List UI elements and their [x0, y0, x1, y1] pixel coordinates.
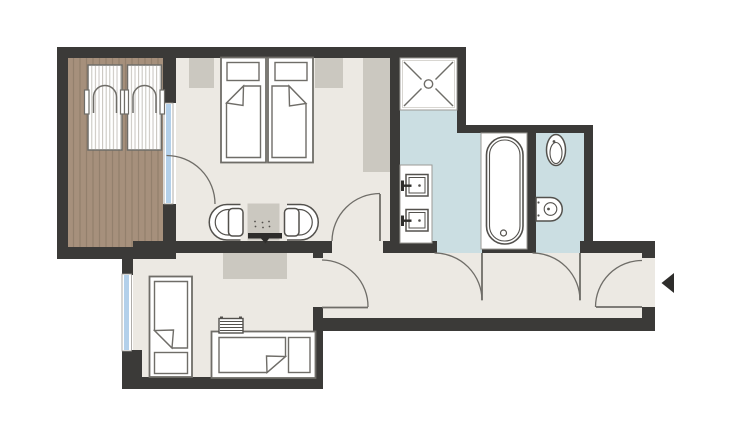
wall-secondroom-left-top — [122, 253, 133, 275]
radiator — [219, 317, 243, 334]
floor-plan-drawing — [0, 0, 754, 435]
single-bed-vertical — [150, 277, 193, 378]
lounger-armrest — [160, 90, 165, 114]
armchair-left — [209, 205, 243, 241]
wall-top — [57, 47, 466, 58]
sun-lounger-left — [85, 65, 125, 150]
second-room-window — [122, 274, 132, 351]
wall-bath-wc-divider — [527, 133, 536, 253]
single-bed-horizontal-pillow — [289, 338, 311, 373]
wc-door-gap-floor — [536, 241, 580, 253]
shower — [400, 58, 457, 110]
wardrobe — [363, 58, 390, 172]
vanity — [400, 165, 432, 243]
single-bed-vertical-pillow — [155, 353, 188, 374]
wall-bath-wc-top — [457, 125, 593, 133]
armchair-right — [285, 205, 319, 241]
wall-wc-right — [584, 125, 593, 253]
wall-hallway-bottom — [315, 318, 655, 331]
balcony-glass-pane — [166, 104, 171, 203]
entry-arrow-icon — [662, 273, 675, 293]
wall-band-hall-3 — [580, 241, 642, 253]
armchair-left-cushion — [229, 209, 244, 237]
sun-lounger-right — [125, 65, 165, 150]
balcony-glass-door — [164, 103, 173, 204]
wall-outer-right-top — [642, 241, 655, 258]
twin-bed-right-pillow — [275, 63, 307, 81]
second-room-door-gap-floor — [313, 258, 323, 307]
faucet-icon — [401, 216, 404, 227]
wall-band-bedroom-secondroom — [133, 241, 332, 253]
bidet — [536, 198, 562, 222]
nightstand-left — [189, 58, 214, 88]
wall-secondroom-right-top — [313, 241, 323, 258]
single-bed-horizontal — [212, 332, 316, 379]
nightstand-right — [315, 58, 343, 88]
wall-secondroom-left-bottom — [122, 350, 142, 389]
bathtub — [481, 133, 527, 249]
armchair-right-cushion — [285, 209, 300, 237]
lounger-armrest — [85, 90, 90, 114]
entrance-gap-floor — [642, 258, 655, 307]
bathtub-rim — [487, 137, 524, 244]
tv-screen — [248, 233, 282, 239]
shower-drain — [424, 80, 432, 88]
wall-bedroom-bath — [390, 47, 400, 253]
toilet — [547, 135, 566, 166]
window-pane — [124, 275, 129, 350]
bathtub-drain — [501, 230, 507, 236]
wall-shower-right — [457, 47, 466, 133]
bathroom-door-gap-floor — [437, 241, 482, 253]
bedroom-door-gap-floor — [332, 241, 383, 253]
floor-plan — [0, 0, 754, 435]
twin-bed-left-pillow — [227, 63, 259, 81]
second-room-rug — [223, 253, 287, 279]
faucet-icon — [401, 181, 404, 192]
wall-balcony-left — [57, 47, 68, 259]
lounger-armrest — [125, 90, 129, 114]
